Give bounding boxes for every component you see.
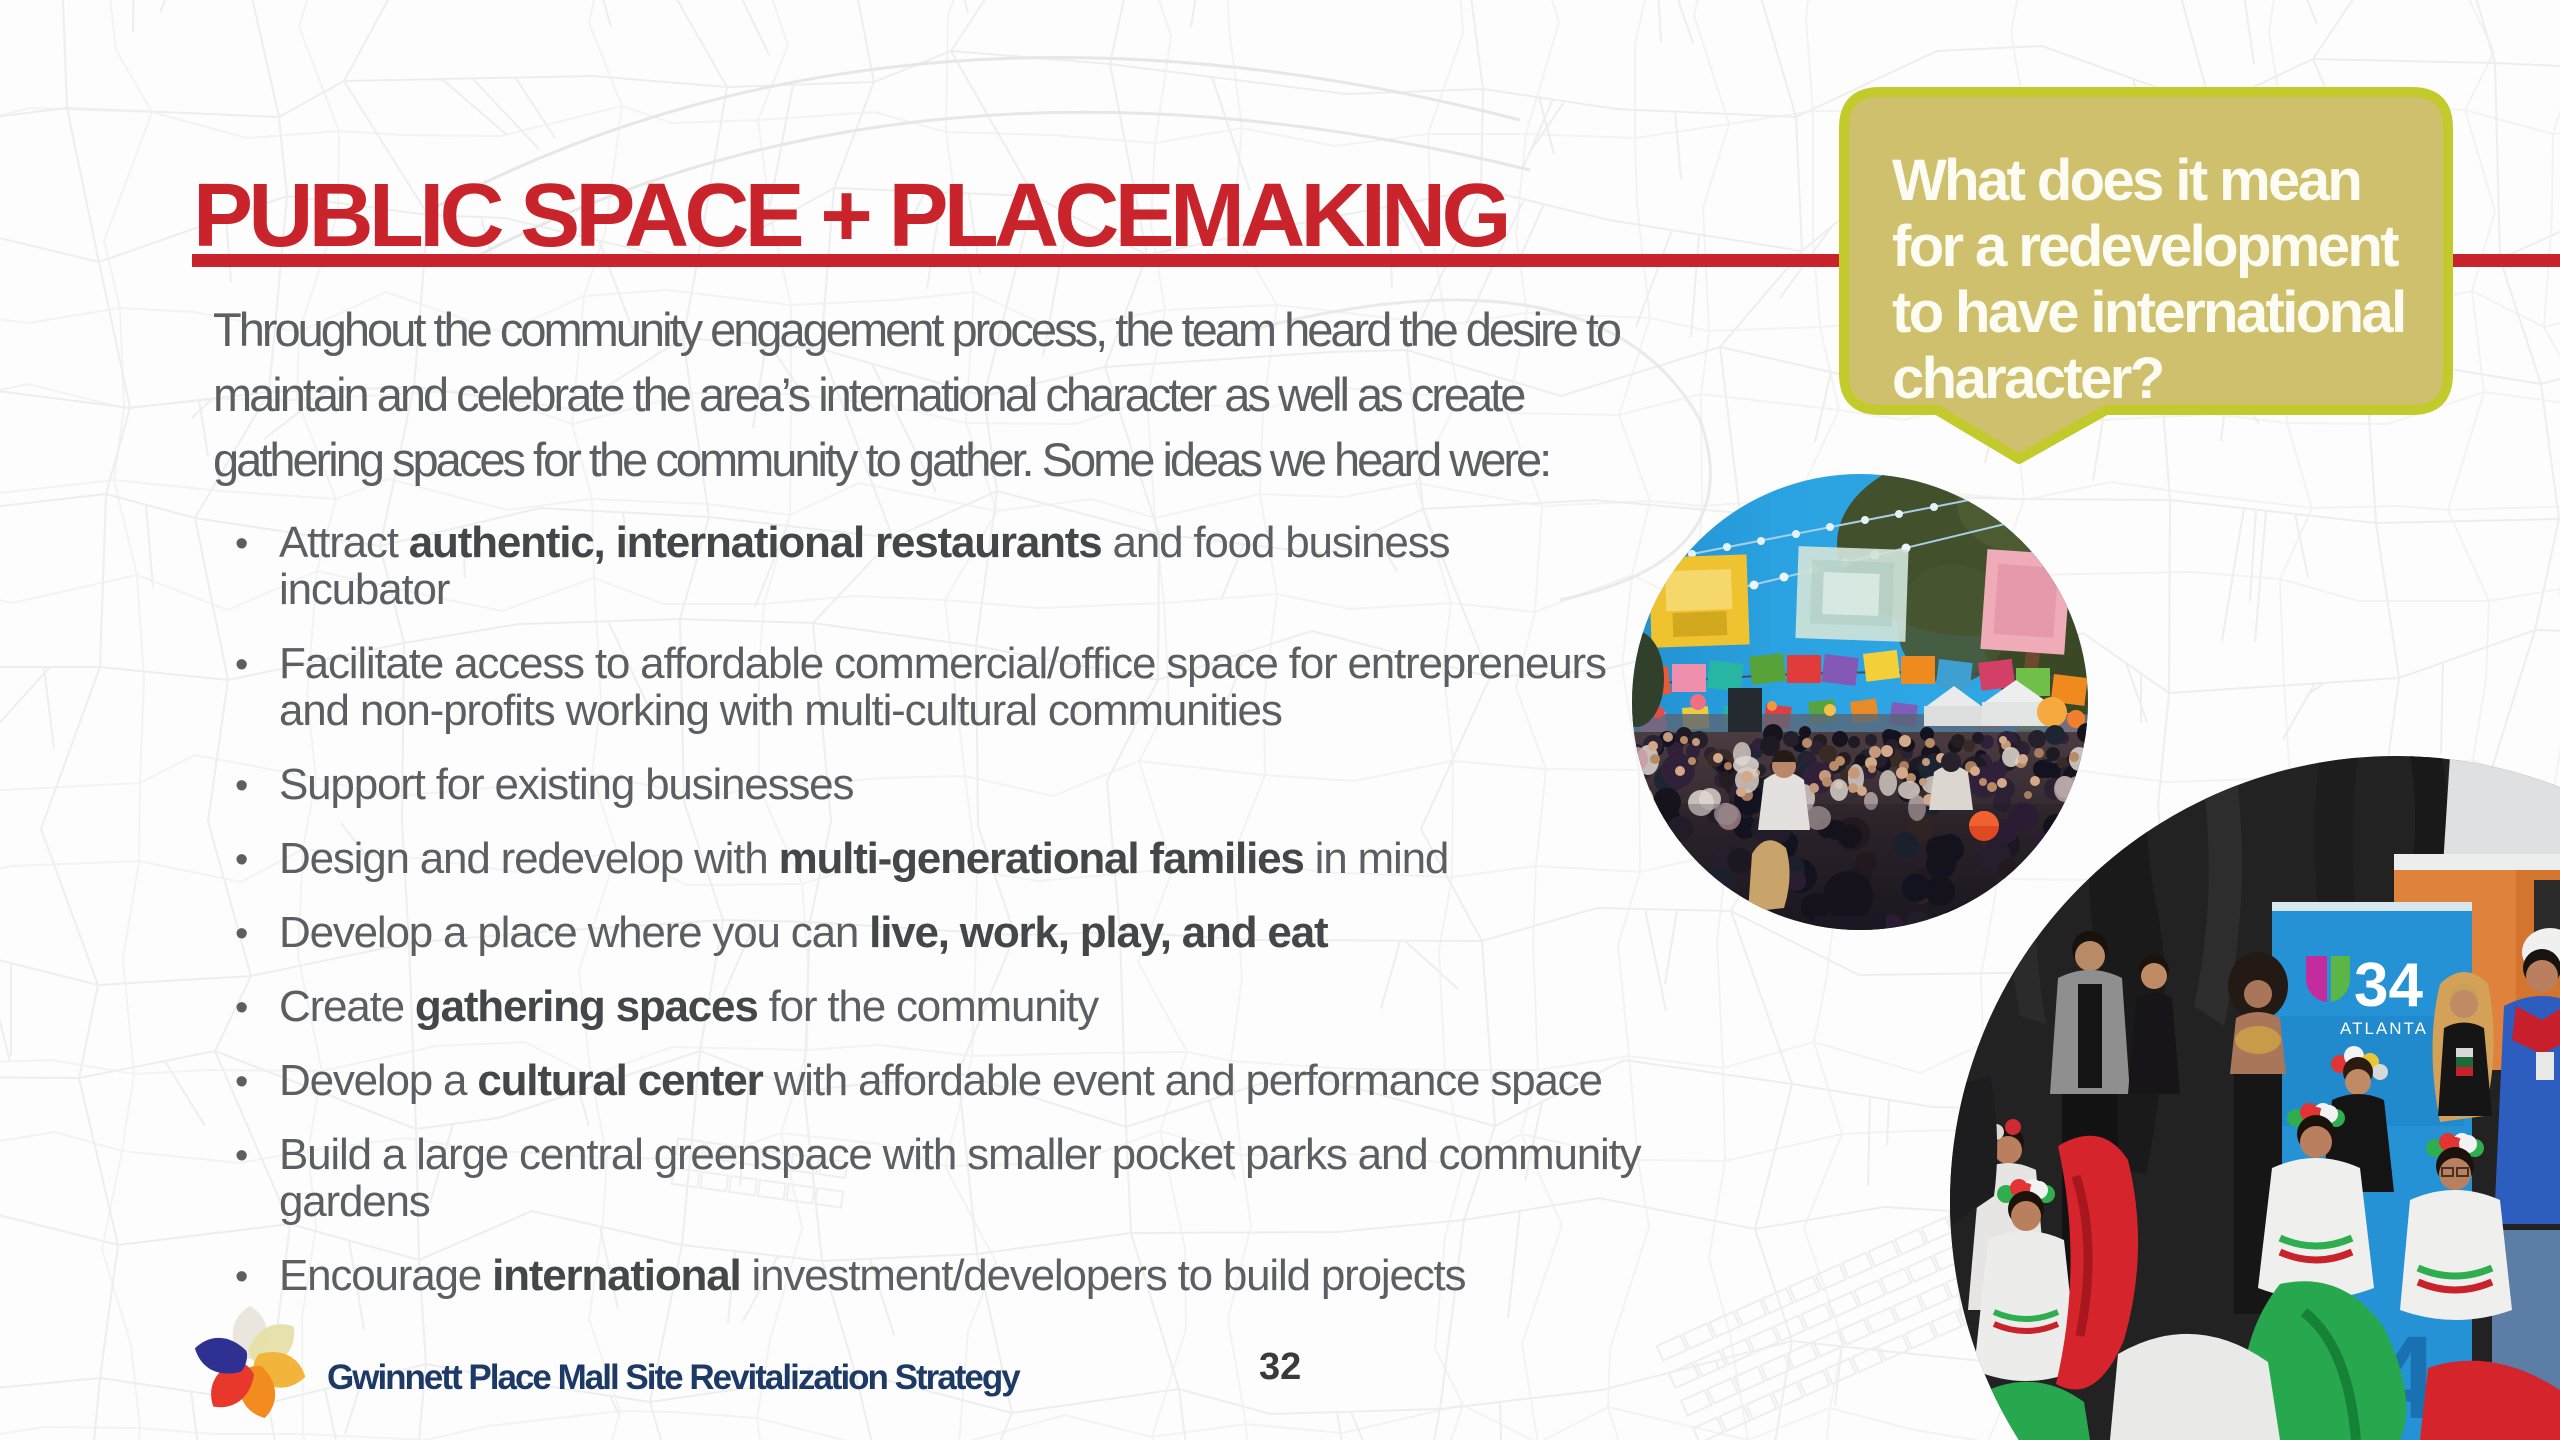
svg-text:ATLANTA: ATLANTA bbox=[2340, 1019, 2428, 1038]
svg-text:34: 34 bbox=[2354, 951, 2423, 1020]
